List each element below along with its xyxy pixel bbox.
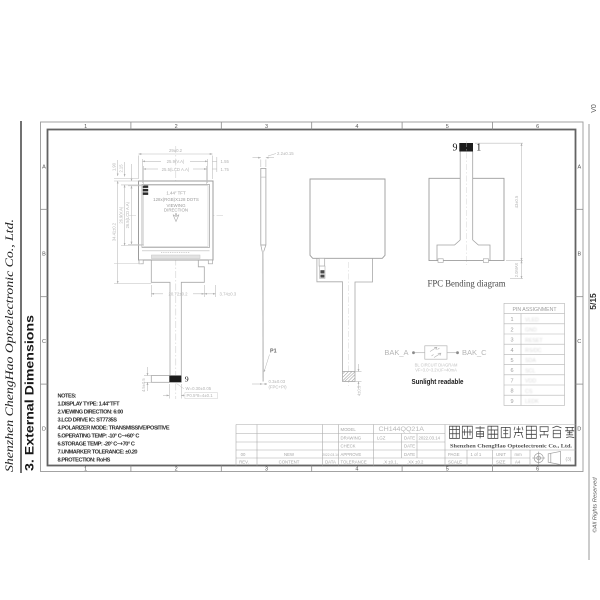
svg-text:B: B [577,252,581,258]
svg-text:5: 5 [446,467,449,473]
svg-text:CHECK: CHECK [341,444,356,449]
svg-text:DIRECTION: DIRECTION [164,208,188,213]
svg-text:CS: CS [525,389,533,395]
svg-text:MODEL: MODEL [341,427,357,432]
svg-text:5.OPERATING TEMP: -10° C~+60°: 5.OPERATING TEMP: -10° C~+60° C [58,433,140,439]
svg-text:A: A [577,164,581,170]
svg-text:REV.: REV. [239,460,249,465]
svg-text:1.44″ TFT: 1.44″ TFT [166,191,186,196]
svg-text:VDD: VDD [525,379,536,385]
svg-text:26.5(LCD A.A): 26.5(LCD A.A) [125,201,130,228]
svg-text:29±0.2: 29±0.2 [169,148,183,153]
svg-text:1.55: 1.55 [221,159,230,164]
svg-text:CH144QQ21A: CH144QQ21A [379,426,425,433]
svg-text:2022.03.14: 2022.03.14 [419,435,441,440]
svg-text:4±0.5: 4±0.5 [356,385,361,396]
svg-text:VLED: VLED [525,317,539,323]
svg-text:RESET: RESET [525,338,543,344]
svg-text:A: A [42,164,46,170]
svg-text:APPROVE: APPROVE [341,452,362,457]
svg-text:SCL: SCL [525,368,535,374]
svg-text:4.POLARIZER MODE: TRANSMISSIVE: 4.POLARIZER MODE: TRANSMISSIVE/POSITIVE [58,425,170,431]
svg-text:1: 1 [84,124,87,130]
svg-text:3.74±0.3: 3.74±0.3 [220,292,237,297]
svg-text:34.41±0.2: 34.41±0.2 [111,222,116,241]
svg-text:SCALE: SCALE [448,460,462,465]
svg-text:7: 7 [510,378,513,384]
svg-text:SDA: SDA [525,358,536,364]
svg-text:NOTES:: NOTES: [58,393,77,399]
svg-text:D: D [577,427,581,433]
svg-text:00: 00 [241,452,246,457]
svg-text:128x(RGB)X128 DOTS: 128x(RGB)X128 DOTS [153,197,199,202]
svg-text:2.15: 2.15 [118,164,123,173]
svg-text:1.75: 1.75 [221,167,230,172]
svg-text:1: 1 [476,143,481,154]
svg-text:W=0.30±0.05: W=0.30±0.05 [186,386,212,391]
svg-text:PIN ASSIGNMENT: PIN ASSIGNMENT [512,307,557,313]
svg-text:FPC Bending diagram: FPC Bending diagram [428,278,506,289]
svg-text:DATE: DATE [404,444,415,449]
svg-text:Shenzhen ChengHao Optoelectron: Shenzhen ChengHao Optoelectronic Co., Lt… [4,219,16,472]
svg-text:2.VIEWING DIRECTION: 6:00: 2.VIEWING DIRECTION: 6:00 [58,409,124,415]
svg-text:.XX ±0.2: .XX ±0.2 [407,460,424,465]
svg-text:RS/DC: RS/DC [525,348,542,354]
svg-text:9: 9 [185,375,189,384]
svg-text:3.LCD DRIVE IC: ST7735S: 3.LCD DRIVE IC: ST7735S [58,417,118,423]
svg-text:UNIT: UNIT [496,452,506,457]
svg-text:3: 3 [510,338,513,344]
svg-text:4.5±0.5: 4.5±0.5 [141,378,146,392]
svg-text:DATE: DATE [404,452,415,457]
svg-text:1 of 1: 1 of 1 [471,452,482,457]
svg-text:B: B [42,252,46,258]
svg-text:LGZ: LGZ [377,436,386,441]
svg-text:(3): (3) [566,456,572,462]
svg-text:C: C [577,339,581,345]
svg-text:2: 2 [510,327,513,333]
svg-text:TOLERANCE: TOLERANCE [341,460,367,465]
svg-text:26.9(V.A): 26.9(V.A) [118,206,123,224]
svg-text:5: 5 [446,124,449,130]
svg-text:GND: GND [525,328,537,334]
svg-text:20.72±0.2: 20.72±0.2 [168,292,188,297]
svg-text:8.PROTECTION: RoHS: 8.PROTECTION: RoHS [58,457,111,463]
svg-text:PAGE: PAGE [448,452,460,457]
svg-text:CONTENT: CONTENT [279,460,300,465]
svg-text:2022.03.14: 2022.03.14 [322,453,339,457]
svg-text:BAK_A: BAK_A [384,348,408,357]
svg-text:LEDK: LEDK [525,399,539,405]
svg-text:A4: A4 [515,460,521,465]
svg-text:2.2±0.15: 2.2±0.15 [277,151,294,156]
svg-text:6: 6 [536,467,539,473]
svg-text:5/15: 5/15 [588,293,598,310]
svg-text:2.0MAX: 2.0MAX [514,262,519,277]
svg-text:Sunlight readable: Sunlight readable [412,377,464,386]
svg-text:mm: mm [515,452,523,457]
svg-text:3: 3 [265,467,268,473]
svg-text:6.STORAGE TEMP: -20° C~+70° C: 6.STORAGE TEMP: -20° C~+70° C [58,441,135,447]
svg-text:43±0.5: 43±0.5 [514,195,519,208]
svg-text:5: 5 [510,358,513,364]
svg-text:0.3±0.03: 0.3±0.03 [269,379,286,384]
svg-text:3: 3 [265,124,268,130]
svg-text:NEW: NEW [284,452,295,457]
svg-text:1.DISPLAY TYPE: 1.44″TFT: 1.DISPLAY TYPE: 1.44″TFT [58,401,121,407]
svg-text:C: C [42,339,46,345]
svg-text:9: 9 [510,399,513,405]
svg-text:DRAWING: DRAWING [341,436,362,441]
svg-text:DATE: DATE [404,436,415,441]
svg-text:BAK_C: BAK_C [462,348,487,357]
svg-text:1: 1 [84,467,87,473]
svg-text:V0: V0 [591,104,598,113]
svg-text:6: 6 [510,368,513,374]
svg-text:DATA: DATA [325,460,336,465]
svg-text:8: 8 [510,389,513,395]
svg-text:SIZE: SIZE [496,460,506,465]
svg-text:2: 2 [175,467,178,473]
svg-text:(FPC+PI): (FPC+PI) [269,385,288,390]
svg-text:4: 4 [355,467,358,473]
svg-text:25.5(LCD A.A): 25.5(LCD A.A) [162,167,190,172]
svg-text:1.90: 1.90 [112,162,117,171]
svg-text:P0.5*8=4±0.1: P0.5*8=4±0.1 [187,393,214,398]
svg-text:Shenzhen ChengHao Optoelectron: Shenzhen ChengHao Optoelectronic Co., Lt… [450,443,573,449]
svg-text:9: 9 [453,143,458,154]
svg-text:VF=3.0~3.2V,IF=40mA: VF=3.0~3.2V,IF=40mA [415,367,457,372]
svg-text:3. External Dimensions: 3. External Dimensions [25,315,37,471]
svg-text:2: 2 [175,124,178,130]
svg-text:4: 4 [355,124,358,130]
svg-text:1: 1 [510,317,513,323]
svg-text:25.9(V.A): 25.9(V.A) [167,159,185,164]
svg-text:©All Rights Reserved: ©All Rights Reserved [592,477,599,533]
svg-text:.X ±0.1,: .X ±0.1, [383,460,398,465]
svg-text:D: D [42,427,46,433]
svg-text:6: 6 [536,124,539,130]
svg-text:P1: P1 [270,349,277,355]
svg-text:7.UNMARKER TOLERANCE: ±0.20: 7.UNMARKER TOLERANCE: ±0.20 [58,449,138,455]
svg-text:4: 4 [510,348,513,354]
